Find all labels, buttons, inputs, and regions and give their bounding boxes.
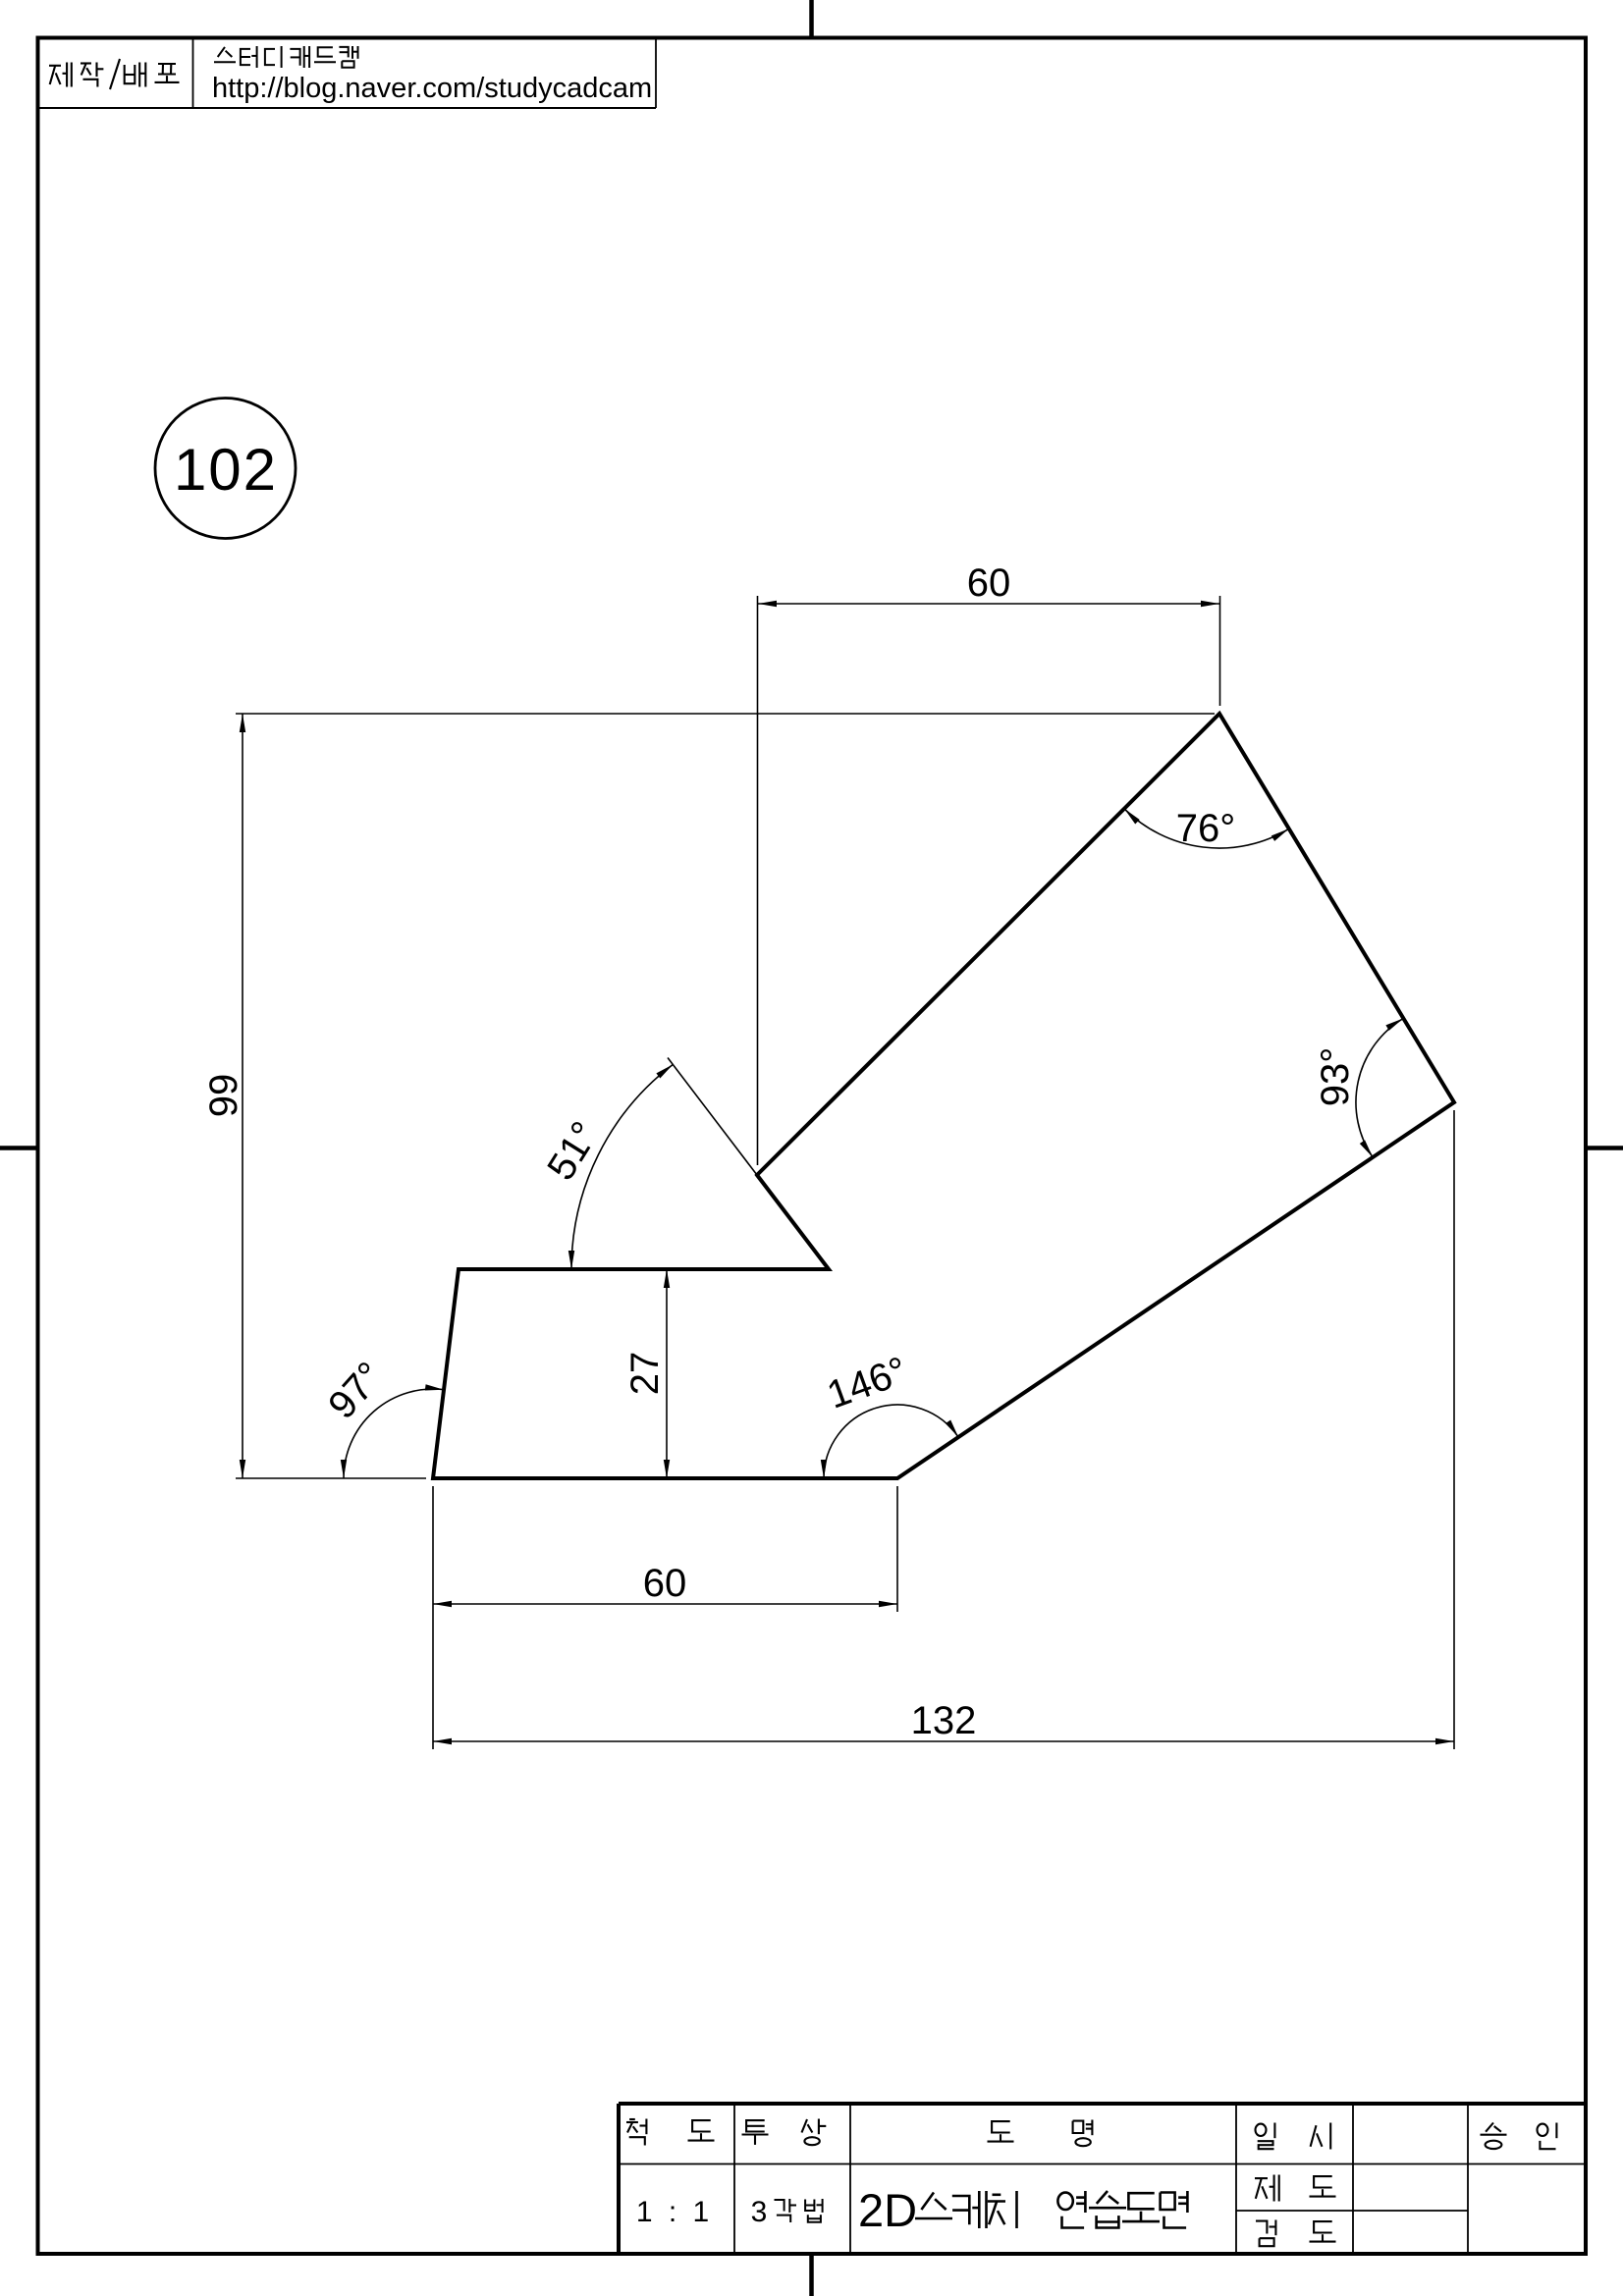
svg-text:93°: 93° (1314, 1047, 1357, 1107)
svg-text:76°: 76° (1176, 807, 1236, 850)
svg-text:132: 132 (911, 1699, 977, 1742)
svg-text:http://blog.naver.com/studycad: http://blog.naver.com/studycadcam (212, 73, 652, 104)
svg-text:102: 102 (174, 437, 278, 503)
svg-text:27: 27 (623, 1352, 667, 1396)
svg-text:3: 3 (751, 2196, 768, 2228)
svg-text:99: 99 (202, 1074, 245, 1118)
svg-text:60: 60 (967, 561, 1011, 605)
svg-text:1 : 1: 1 : 1 (636, 2196, 713, 2228)
svg-text:2D: 2D (858, 2184, 917, 2236)
svg-text:60: 60 (643, 1562, 687, 1605)
